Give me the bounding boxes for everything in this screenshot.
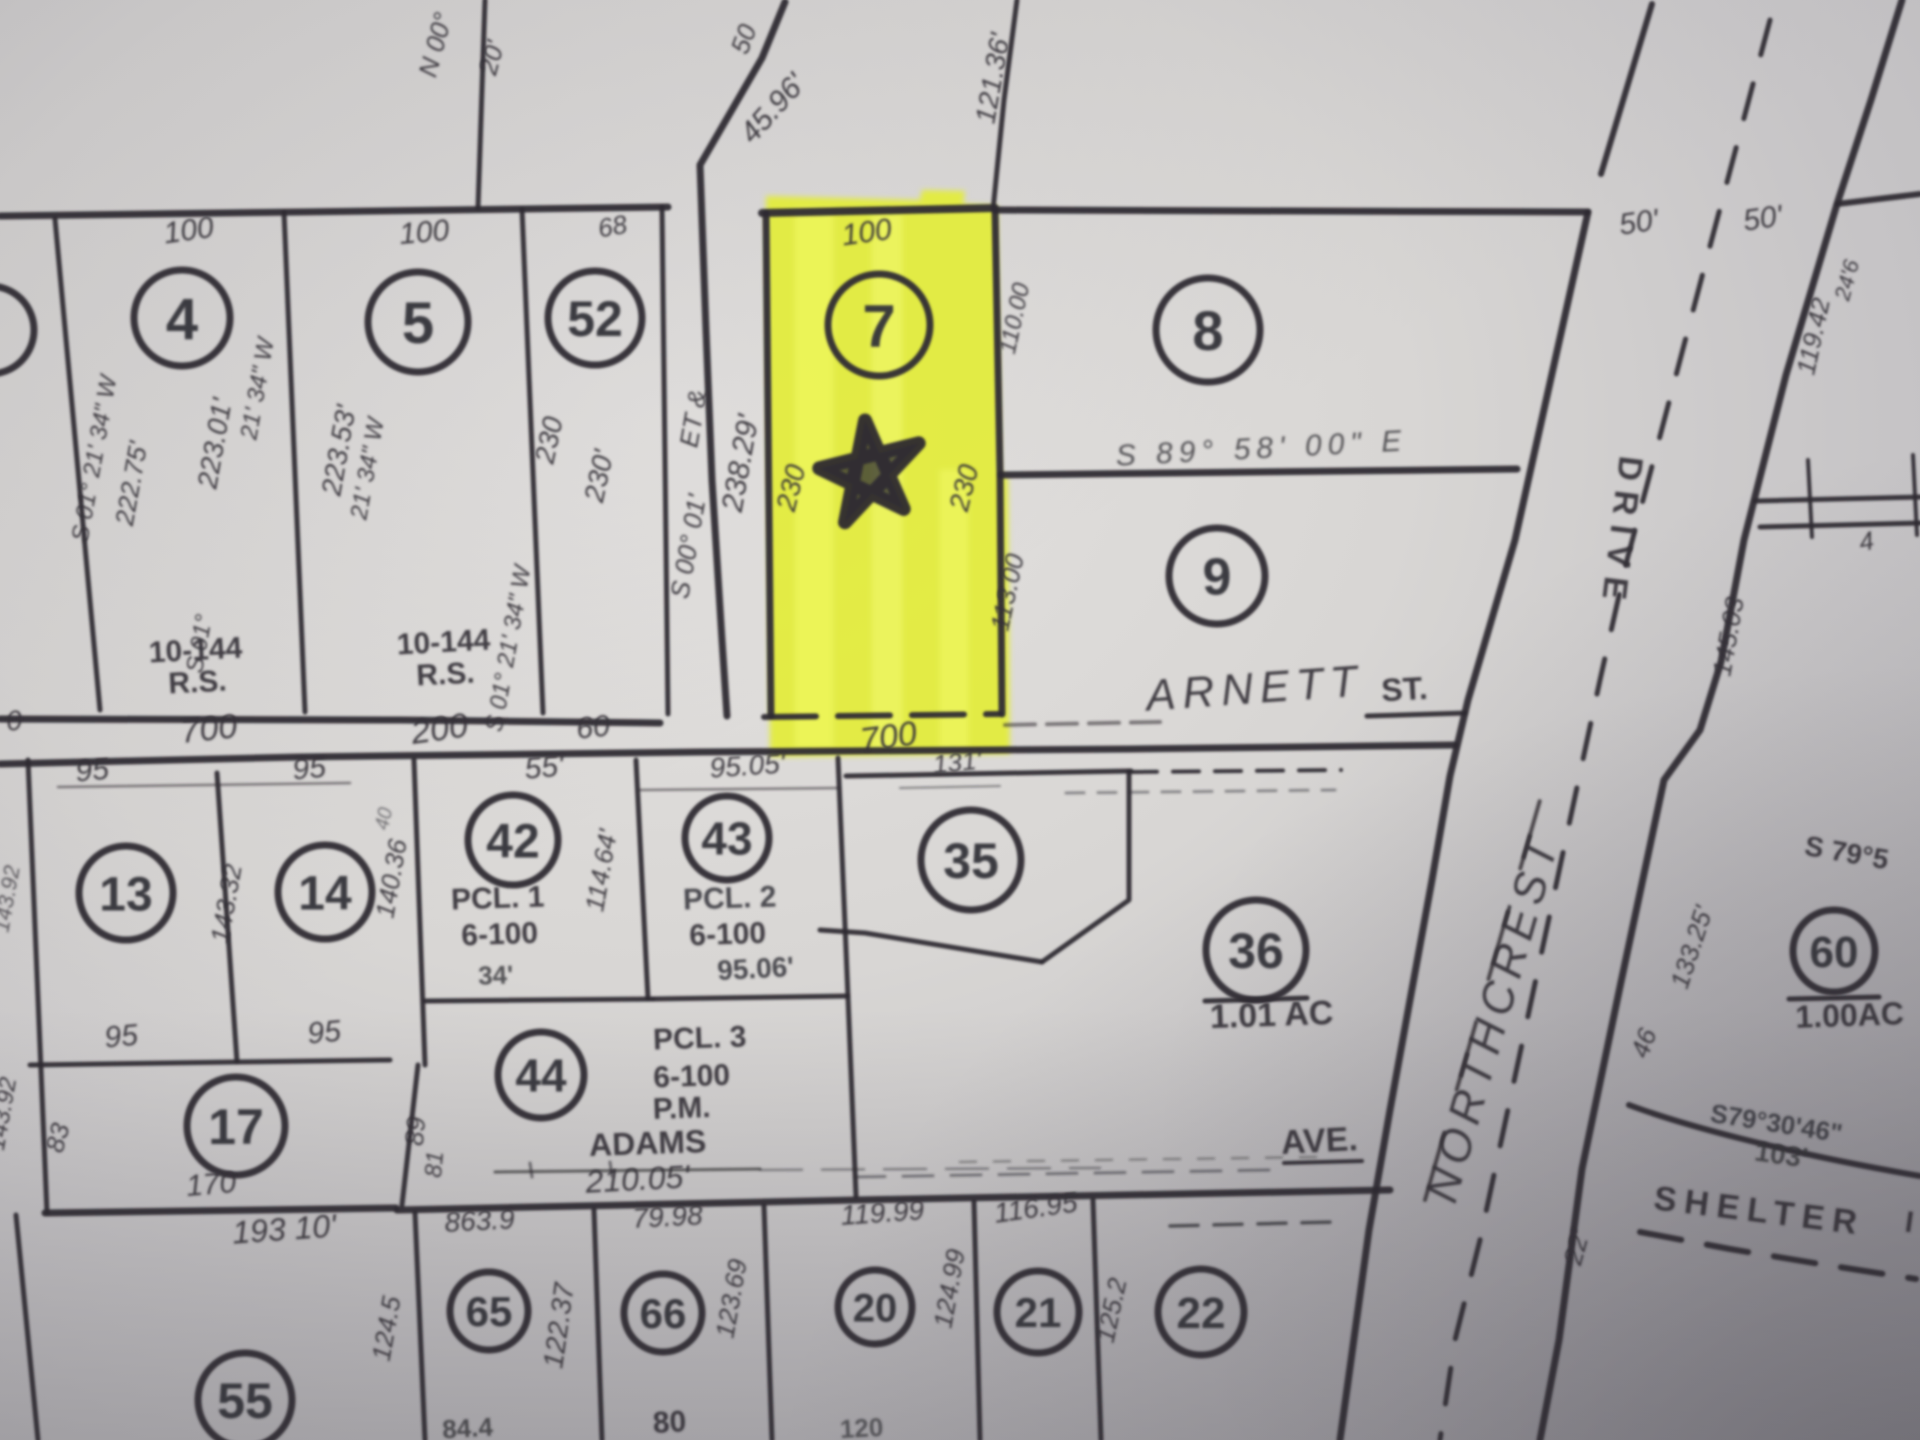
svg-text:10-144: 10-144 (396, 624, 491, 662)
svg-text:ADAMS: ADAMS (588, 1123, 707, 1163)
svg-text:79.98: 79.98 (632, 1199, 704, 1234)
svg-text:10-144: 10-144 (148, 632, 243, 670)
svg-text:50': 50' (1617, 203, 1662, 241)
svg-text:20: 20 (853, 1286, 898, 1330)
svg-text:60: 60 (1810, 928, 1859, 977)
svg-text:95: 95 (291, 751, 327, 787)
svg-text:68: 68 (596, 209, 630, 244)
svg-text:700: 700 (858, 714, 920, 760)
svg-text:13: 13 (99, 868, 152, 921)
svg-text:50': 50' (1741, 199, 1786, 237)
svg-text:P.M.: P.M. (652, 1091, 711, 1126)
svg-text:35: 35 (943, 833, 999, 889)
svg-text:210.05': 210.05' (584, 1158, 693, 1200)
svg-text:PCL. 1: PCL. 1 (450, 880, 544, 916)
svg-text:8: 8 (1192, 299, 1223, 362)
svg-text:100: 100 (162, 211, 216, 251)
svg-text:7: 7 (862, 293, 895, 360)
svg-text:200: 200 (408, 706, 471, 752)
svg-text:100: 100 (840, 213, 894, 253)
svg-text:9: 9 (1203, 549, 1232, 607)
svg-text:21: 21 (1015, 1289, 1062, 1336)
svg-text:119.99: 119.99 (840, 1194, 926, 1231)
svg-text:ST.: ST. (1380, 670, 1428, 708)
svg-text:22: 22 (1177, 1289, 1226, 1338)
svg-text:131': 131' (931, 744, 983, 779)
svg-text:80: 80 (652, 1405, 687, 1440)
svg-text:1.01 AC: 1.01 AC (1209, 994, 1334, 1036)
svg-text:84.4: 84.4 (441, 1412, 494, 1440)
svg-text:AVE.: AVE. (1280, 1120, 1359, 1162)
svg-text:95: 95 (74, 753, 110, 789)
svg-text:100: 100 (398, 214, 451, 251)
svg-text:95: 95 (103, 1019, 139, 1055)
svg-text:R.S.: R.S. (415, 657, 475, 693)
svg-text:170: 170 (185, 1166, 238, 1203)
svg-text:95.05': 95.05' (709, 747, 788, 783)
svg-text:6-100: 6-100 (461, 917, 539, 953)
svg-text:R.S.: R.S. (167, 665, 227, 701)
svg-text:6-100: 6-100 (653, 1059, 731, 1095)
svg-text:52: 52 (567, 291, 623, 347)
svg-text:55: 55 (217, 1373, 273, 1429)
svg-text:PCL. 2: PCL. 2 (682, 880, 776, 916)
svg-text:55': 55' (523, 749, 566, 785)
svg-text:89: 89 (399, 1116, 431, 1147)
svg-text:66: 66 (640, 1290, 687, 1337)
svg-text:5: 5 (402, 291, 434, 356)
svg-text:193 10': 193 10' (231, 1207, 339, 1250)
svg-text:4: 4 (166, 287, 198, 352)
svg-text:40: 40 (371, 806, 397, 832)
svg-text:95.06': 95.06' (716, 951, 794, 986)
svg-text:6-100: 6-100 (689, 917, 767, 953)
svg-text:1.00AC: 1.00AC (1795, 995, 1905, 1035)
svg-text:65: 65 (466, 1288, 513, 1335)
svg-text:81: 81 (420, 1150, 449, 1179)
svg-text:14: 14 (298, 867, 352, 920)
svg-text:36: 36 (1228, 923, 1284, 979)
svg-text:34': 34' (478, 959, 514, 990)
svg-text:863.9: 863.9 (444, 1203, 516, 1238)
svg-text:42: 42 (486, 815, 539, 868)
svg-text:44: 44 (515, 1050, 567, 1102)
svg-text:17: 17 (208, 1099, 264, 1155)
svg-text:60: 60 (575, 709, 612, 745)
svg-text:43: 43 (701, 813, 752, 865)
svg-text:PCL. 3: PCL. 3 (652, 1020, 746, 1056)
svg-text:95: 95 (306, 1015, 342, 1051)
svg-text:700: 700 (179, 707, 239, 751)
svg-text:120: 120 (839, 1412, 884, 1440)
